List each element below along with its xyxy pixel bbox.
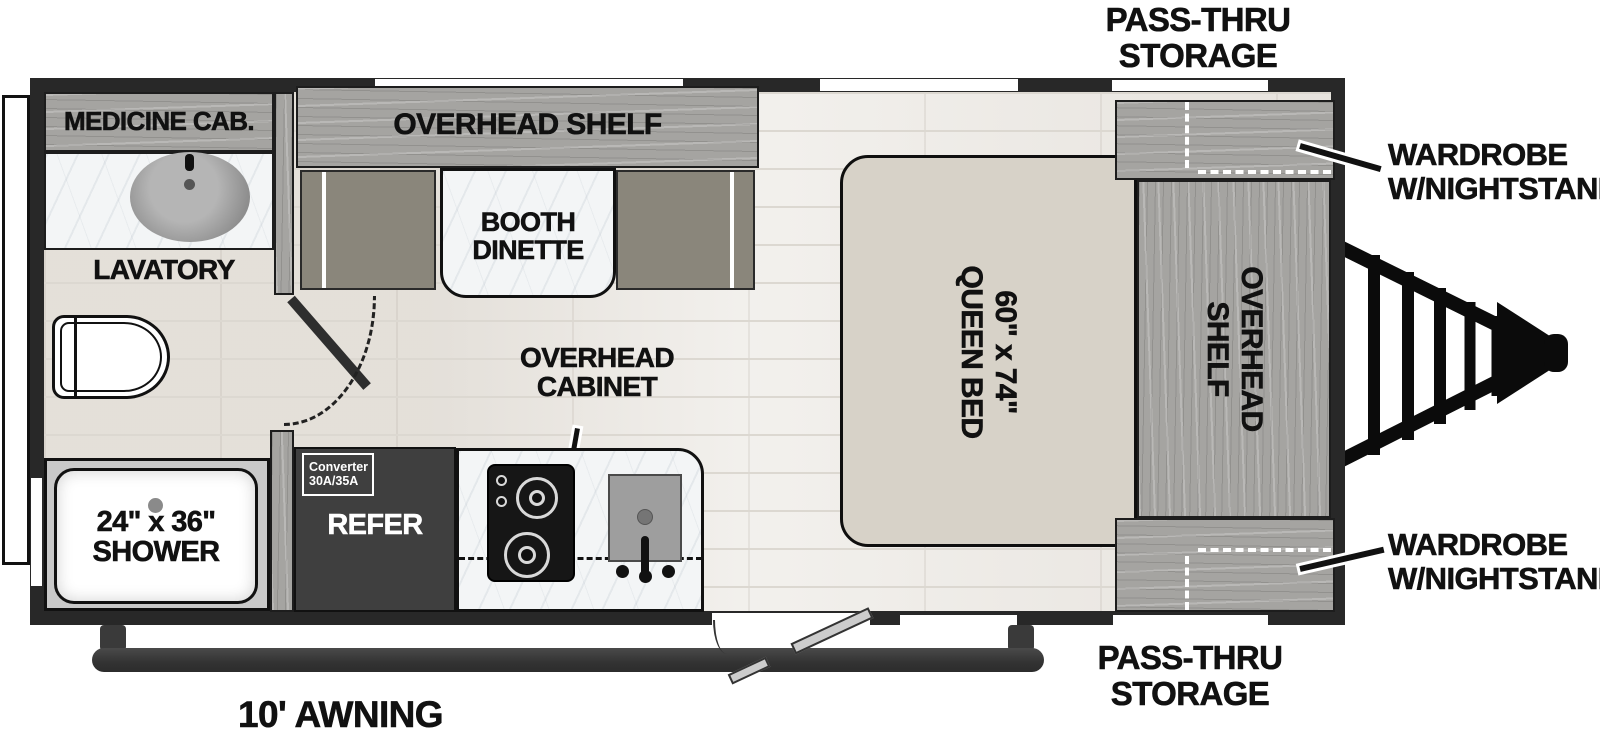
wardrobe-rear-label: WARDROBE W/NIGHTSTAND	[1388, 528, 1600, 596]
awning-label: 10' AWNING	[238, 696, 443, 734]
medicine-cabinet-label: MEDICINE CAB.	[46, 108, 272, 135]
bath-wall-upper	[274, 92, 294, 295]
faucet-handle-icon	[639, 570, 652, 583]
bench-seam	[322, 172, 326, 288]
window-top-3	[1112, 80, 1268, 91]
floorplan-canvas: MEDICINE CAB. LAVATORY 24" x 36" SHOWER …	[0, 0, 1600, 737]
dinette-bench-left	[300, 170, 436, 290]
bench-seam	[730, 172, 734, 288]
window-bottom-1	[900, 615, 1017, 625]
wardrobe-dash	[1198, 170, 1331, 174]
kitchen-sink-drain-icon	[637, 509, 653, 525]
converter-label: Converter 30A/35A	[302, 453, 374, 496]
baggage-door-bottom	[1113, 615, 1268, 625]
wardrobe-dash	[1198, 548, 1331, 552]
toilet-tank-line	[74, 318, 77, 396]
overhead-cabinet-label: OVERHEAD CABINET	[497, 344, 697, 402]
bath-wall-lower	[270, 430, 294, 612]
dinette-bench-right	[616, 170, 755, 290]
cooktop-knob-icon	[496, 496, 507, 507]
wardrobe-dash	[1185, 556, 1189, 610]
cooktop-knob-icon	[496, 475, 507, 486]
burner-center-icon	[518, 546, 536, 564]
galley-overhead-shelf: OVERHEAD SHELF	[296, 86, 759, 168]
window-left	[31, 478, 42, 586]
galley-overhead-shelf-label: OVERHEAD SHELF	[298, 110, 757, 141]
shower-label: 24" x 36" SHOWER	[54, 508, 258, 568]
refer-label: REFER	[296, 511, 454, 541]
wardrobe-nightstand-top	[1115, 100, 1335, 180]
wardrobe-dash	[1185, 102, 1189, 168]
booth-dinette-label: BOOTH DINETTE	[443, 209, 613, 265]
pass-thru-storage-bottom-label: PASS-THRU STORAGE	[1085, 640, 1295, 712]
faucet-handle-icon	[662, 565, 675, 578]
lavatory-label: LAVATORY	[64, 256, 264, 285]
dinette-table: BOOTH DINETTE	[440, 168, 616, 298]
pass-thru-storage-top-label: PASS-THRU STORAGE	[1088, 2, 1308, 74]
bath-faucet-icon	[185, 154, 194, 171]
faucet-handle-icon	[616, 565, 629, 578]
medicine-cabinet: MEDICINE CAB.	[44, 92, 274, 152]
window-top-2	[820, 79, 1018, 91]
wardrobe-front-label: WARDROBE W/NIGHTSTAND	[1388, 138, 1600, 206]
burner-center-icon	[529, 490, 545, 506]
bath-drain-icon	[184, 179, 195, 190]
awning-roller-bar	[92, 648, 1044, 672]
rear-wall-flange	[2, 95, 30, 565]
